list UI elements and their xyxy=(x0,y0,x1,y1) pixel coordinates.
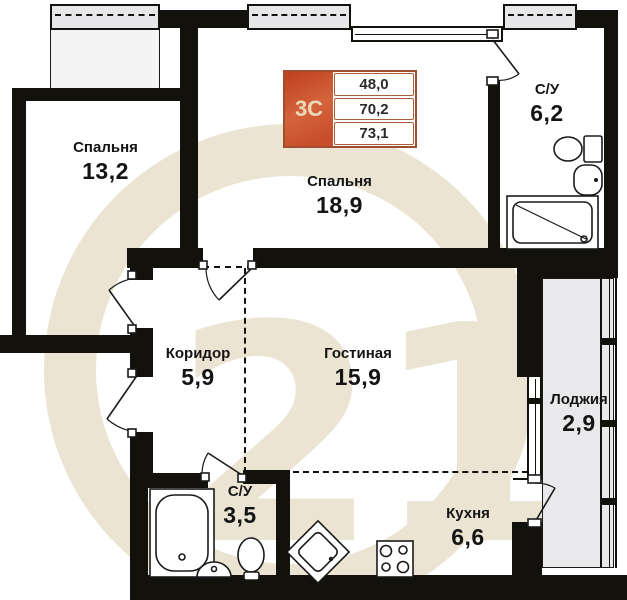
room-name: Спальня xyxy=(272,172,407,191)
shower-tray-icon xyxy=(507,196,598,249)
room-name: Спальня xyxy=(38,138,173,157)
toilet-icon xyxy=(238,538,264,580)
area-value-living: 48,0 xyxy=(334,73,414,96)
area-value-apartment: 70,2 xyxy=(334,98,414,121)
apartment-areas: 48,0 70,2 73,1 xyxy=(333,72,415,146)
door-swing-bedroom1 xyxy=(109,271,136,333)
room-area: 15,9 xyxy=(294,363,422,391)
room-label-bedroom1: Спальня 13,2 xyxy=(38,138,173,185)
room-name: Коридор xyxy=(140,344,256,363)
corner-sink-icon xyxy=(287,521,349,583)
room-label-kitchen: Кухня 6,6 xyxy=(430,504,506,551)
room-name: Гостиная xyxy=(294,344,422,363)
door-swing-entrance xyxy=(107,369,136,437)
room-name: С/У xyxy=(206,482,274,501)
room-area: 3,5 xyxy=(206,501,274,529)
room-label-living: Гостиная 15,9 xyxy=(294,344,422,391)
room-name: С/У xyxy=(506,80,588,99)
room-label-corridor: Коридор 5,9 xyxy=(140,344,256,391)
stove-icon xyxy=(377,541,413,577)
door-swing-bathroom-top xyxy=(487,30,519,85)
area-value-total: 73,1 xyxy=(334,122,414,145)
room-area: 5,9 xyxy=(140,363,256,391)
room-area: 6,6 xyxy=(430,523,506,551)
floor-plan: 21 xyxy=(0,0,627,600)
room-label-bathroom-top: С/У 6,2 xyxy=(506,80,588,127)
room-label-bedroom2: Спальня 18,9 xyxy=(272,172,407,219)
room-area: 13,2 xyxy=(38,157,173,185)
door-swing-loggia xyxy=(528,475,555,527)
room-area: 2,9 xyxy=(544,409,614,437)
apartment-type-badge: 3С xyxy=(285,72,333,146)
sink-icon xyxy=(574,165,602,195)
room-label-loggia: Лоджия 2,9 xyxy=(544,390,614,437)
room-area: 18,9 xyxy=(272,191,407,219)
toilet-icon xyxy=(554,136,602,162)
door-swing-bedroom2 xyxy=(199,261,256,300)
room-name: Лоджия xyxy=(544,390,614,409)
apartment-info-card: 3С 48,0 70,2 73,1 xyxy=(283,70,417,148)
room-name: Кухня xyxy=(430,504,506,523)
door-swing-bathroom-bottom xyxy=(201,453,246,482)
room-area: 6,2 xyxy=(506,99,588,127)
room-label-bathroom-bottom: С/У 3,5 xyxy=(206,482,274,529)
